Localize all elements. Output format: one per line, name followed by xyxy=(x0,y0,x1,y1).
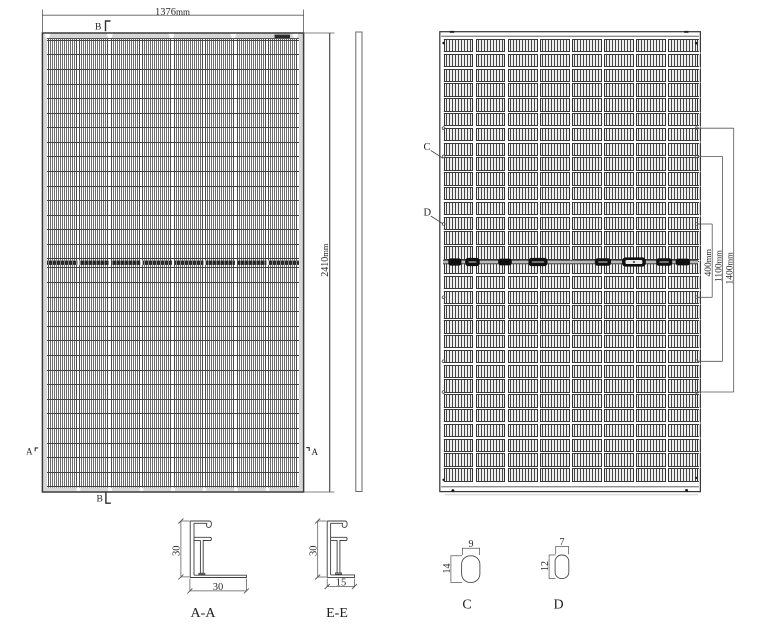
svg-text:14: 14 xyxy=(442,564,453,574)
svg-text:A: A xyxy=(312,447,319,457)
svg-text:30: 30 xyxy=(213,582,224,593)
svg-text:2410mm: 2410mm xyxy=(320,243,331,277)
svg-text:9: 9 xyxy=(469,539,474,550)
svg-text:C: C xyxy=(462,598,471,613)
svg-text:A: A xyxy=(26,447,33,457)
svg-text:30: 30 xyxy=(308,546,319,557)
svg-text:E-E: E-E xyxy=(326,606,348,621)
svg-text:15: 15 xyxy=(336,578,347,589)
svg-text:1400mm: 1400mm xyxy=(725,252,736,285)
svg-text:C: C xyxy=(424,142,431,153)
svg-text:12: 12 xyxy=(540,561,551,571)
svg-text:1100mm: 1100mm xyxy=(713,250,724,282)
svg-text:B: B xyxy=(95,22,101,32)
svg-text:D: D xyxy=(553,598,563,613)
svg-text:1376mm: 1376mm xyxy=(155,7,190,18)
svg-text:A-A: A-A xyxy=(191,606,217,621)
svg-text:D: D xyxy=(424,208,432,219)
svg-text:30: 30 xyxy=(172,546,183,557)
svg-text:B: B xyxy=(97,495,103,505)
svg-text:7: 7 xyxy=(560,537,565,548)
